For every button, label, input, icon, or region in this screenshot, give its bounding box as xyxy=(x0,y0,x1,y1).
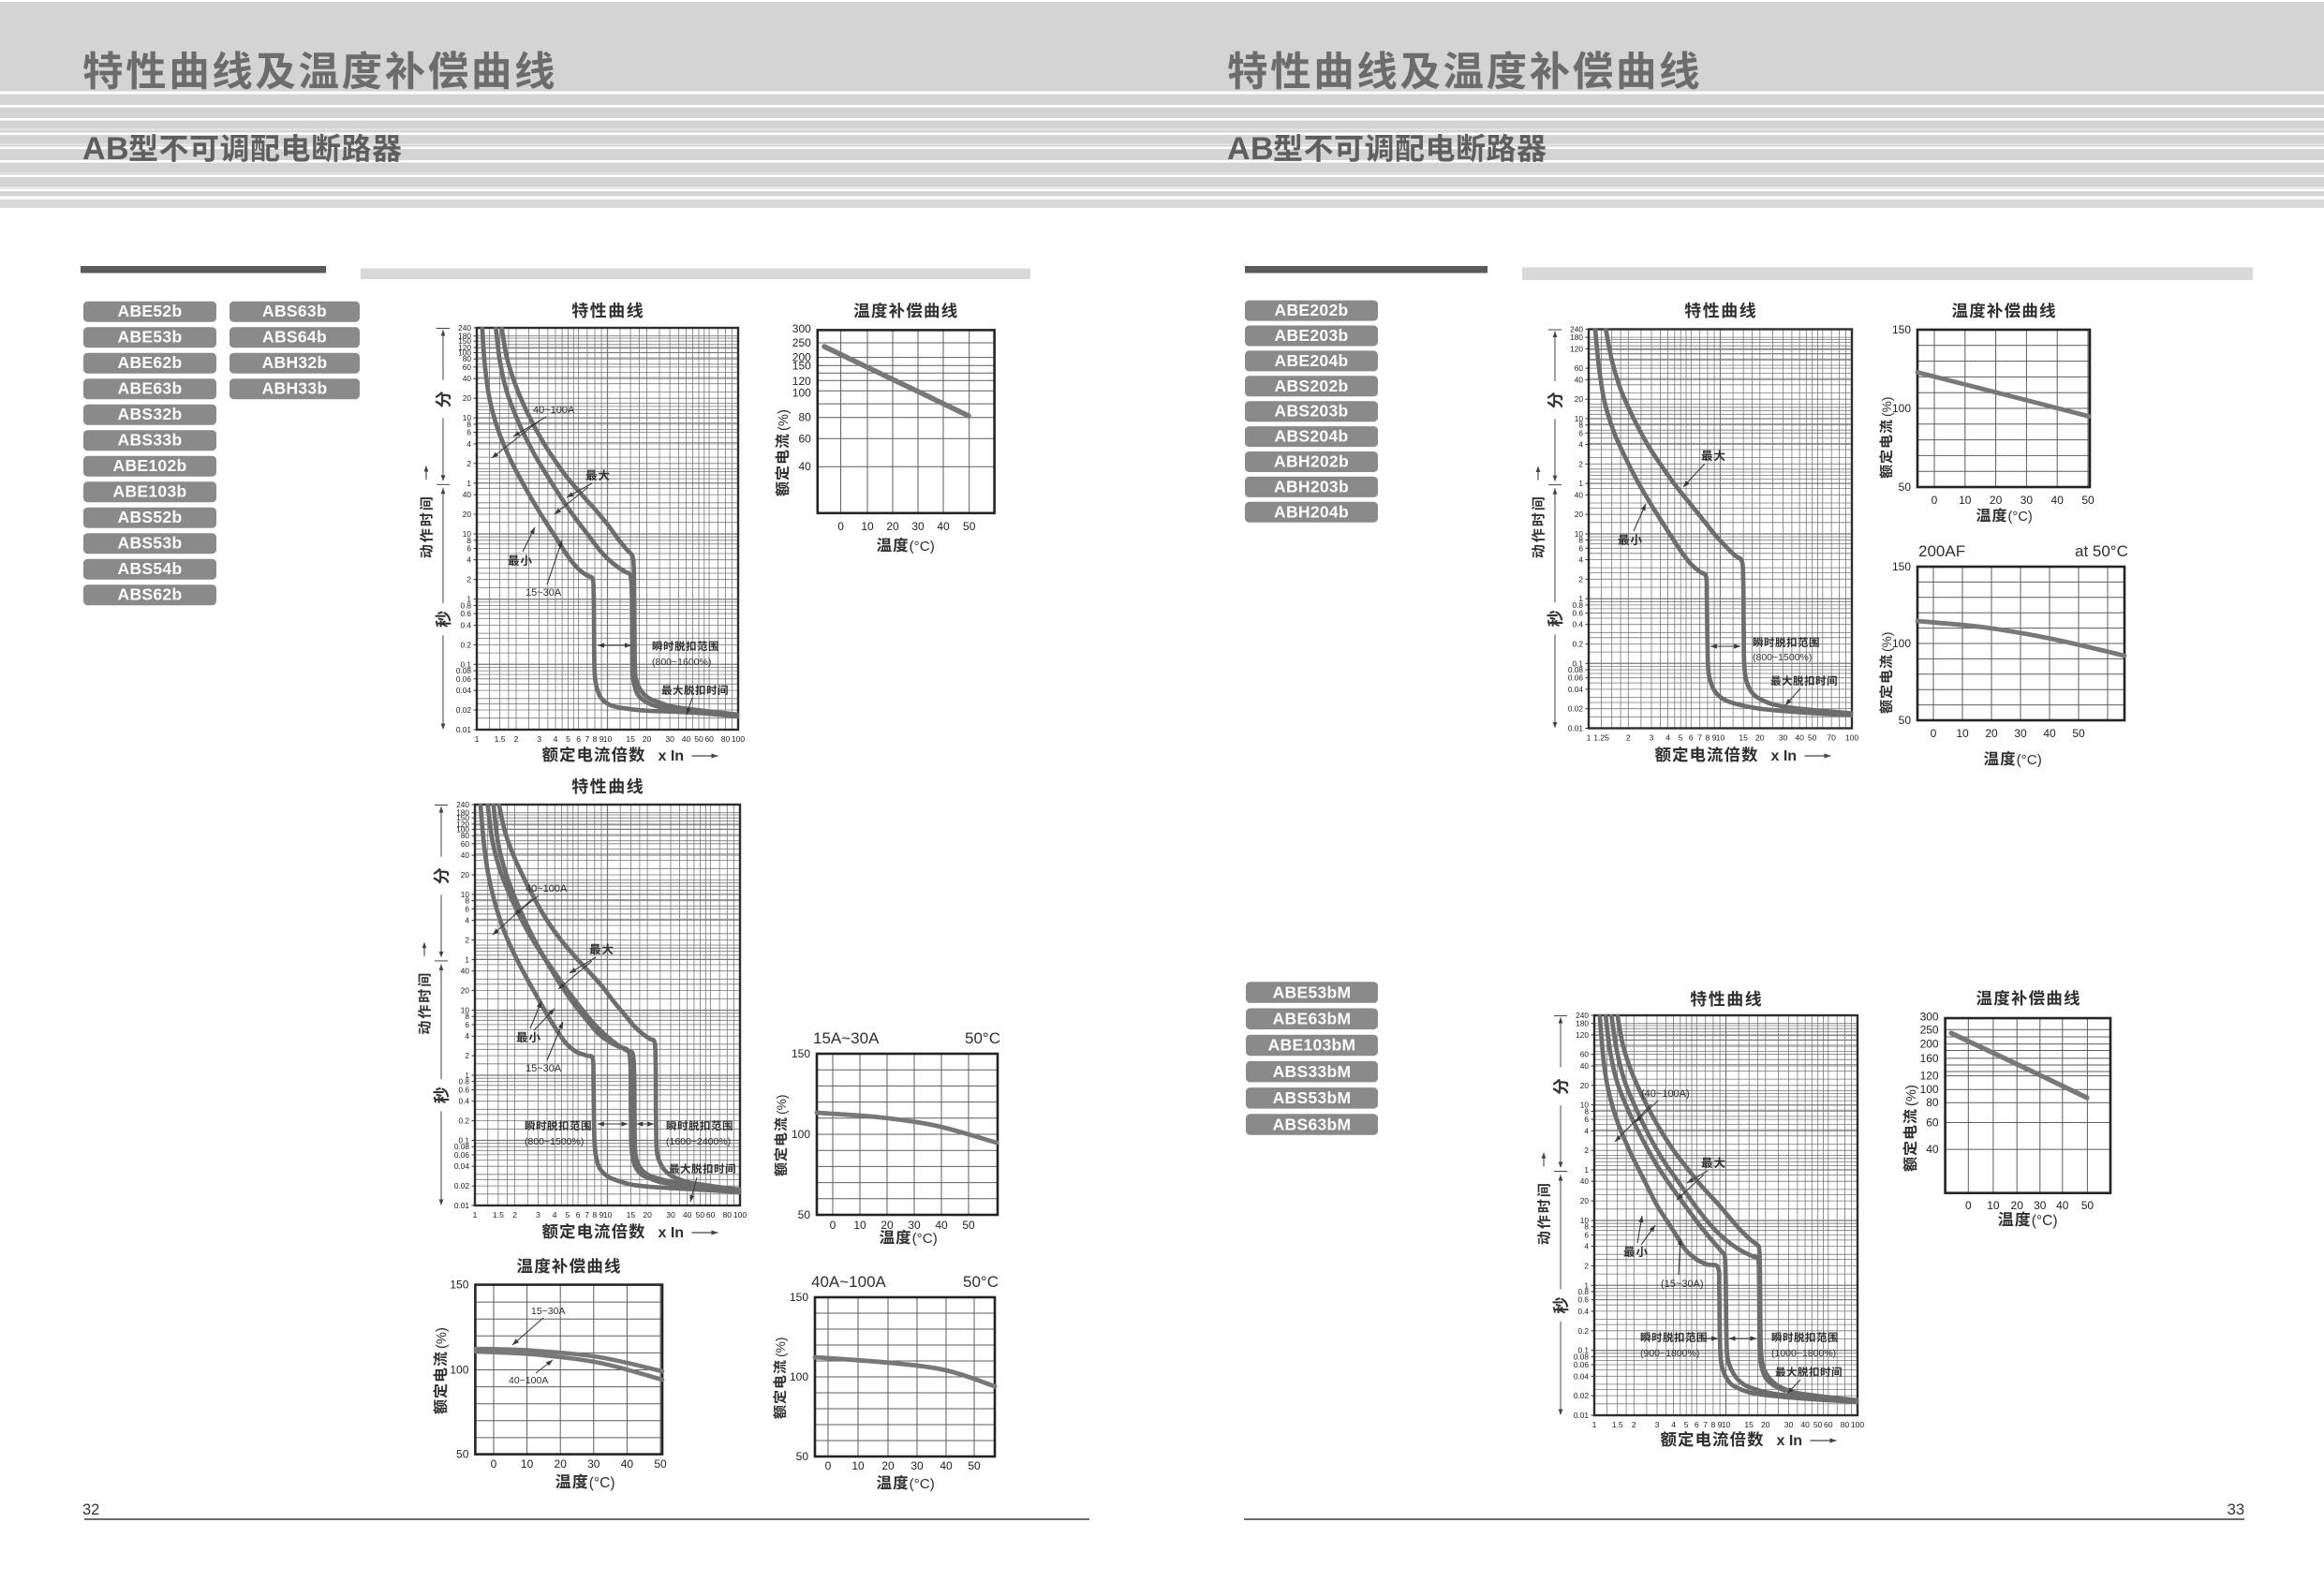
svg-text:50°C: 50°C xyxy=(963,1273,999,1291)
svg-text:6: 6 xyxy=(1695,1420,1699,1429)
svg-text:40: 40 xyxy=(2051,494,2065,507)
svg-text:1: 1 xyxy=(1584,1165,1589,1175)
svg-text:0.4: 0.4 xyxy=(460,620,471,629)
svg-text:40: 40 xyxy=(1575,490,1584,499)
svg-text:100: 100 xyxy=(1892,402,1911,415)
svg-text:50: 50 xyxy=(2081,494,2095,507)
svg-text:0.01: 0.01 xyxy=(454,1201,470,1210)
svg-text:40: 40 xyxy=(683,1210,692,1220)
svg-text:ABH33b: ABH33b xyxy=(262,379,328,398)
svg-text:15: 15 xyxy=(626,734,635,744)
svg-text:50: 50 xyxy=(968,1459,981,1472)
svg-text:300: 300 xyxy=(1920,1011,1939,1024)
svg-text:15: 15 xyxy=(1744,1420,1754,1429)
svg-text:0: 0 xyxy=(837,520,844,533)
svg-text:0.4: 0.4 xyxy=(458,1097,469,1106)
svg-text:150: 150 xyxy=(792,359,811,372)
svg-text:ABH32b: ABH32b xyxy=(262,353,328,372)
svg-text:ABS53bM: ABS53bM xyxy=(1273,1088,1352,1107)
svg-text:(%): (%) xyxy=(1880,397,1894,417)
svg-text:1: 1 xyxy=(1587,733,1591,743)
svg-text:4: 4 xyxy=(1665,733,1670,743)
svg-text:ABE62b: ABE62b xyxy=(118,353,183,372)
svg-text:10: 10 xyxy=(1959,494,1972,507)
svg-text:5: 5 xyxy=(1684,1420,1689,1429)
svg-text:10: 10 xyxy=(1956,727,1969,740)
svg-text:3: 3 xyxy=(537,734,541,744)
svg-text:(1600~2400%): (1600~2400%) xyxy=(666,1136,731,1147)
svg-text:ABS53b: ABS53b xyxy=(118,534,183,553)
svg-text:0: 0 xyxy=(830,1219,836,1232)
svg-text:0.04: 0.04 xyxy=(454,1161,470,1171)
svg-text:ABE63bM: ABE63bM xyxy=(1273,1010,1352,1028)
svg-text:1: 1 xyxy=(475,734,480,744)
svg-text:0: 0 xyxy=(1931,727,1937,740)
svg-text:20: 20 xyxy=(643,1210,652,1220)
svg-text:8: 8 xyxy=(1711,1420,1716,1429)
svg-text:80: 80 xyxy=(721,734,731,744)
svg-text:60: 60 xyxy=(704,734,714,744)
svg-text:20: 20 xyxy=(1985,727,1998,740)
svg-text:40: 40 xyxy=(1580,1176,1590,1186)
svg-text:(800~1500%): (800~1500%) xyxy=(525,1136,584,1147)
svg-text:70: 70 xyxy=(1827,733,1836,743)
svg-text:ABE203b: ABE203b xyxy=(1275,326,1349,345)
svg-text:40: 40 xyxy=(1800,1420,1810,1429)
svg-text:(%): (%) xyxy=(774,1338,788,1357)
svg-text:100: 100 xyxy=(450,1364,468,1377)
svg-text:60: 60 xyxy=(463,362,472,372)
svg-text:40: 40 xyxy=(463,374,472,383)
svg-text:20: 20 xyxy=(1575,394,1584,404)
svg-text:ABE53bM: ABE53bM xyxy=(1273,983,1352,1001)
svg-text:60: 60 xyxy=(1575,363,1584,373)
svg-text:15~30A: 15~30A xyxy=(525,1063,562,1074)
svg-text:100: 100 xyxy=(733,1210,748,1220)
svg-text:3: 3 xyxy=(536,1210,540,1220)
svg-text:50: 50 xyxy=(798,1208,811,1221)
svg-text:1: 1 xyxy=(465,954,469,964)
svg-text:50: 50 xyxy=(1808,733,1817,743)
svg-text:6: 6 xyxy=(1689,733,1694,743)
svg-text:0.02: 0.02 xyxy=(454,1181,470,1190)
svg-text:0.6: 0.6 xyxy=(1577,1295,1589,1305)
svg-text:15: 15 xyxy=(1739,733,1748,743)
svg-text:0.06: 0.06 xyxy=(1574,1360,1590,1369)
svg-text:40: 40 xyxy=(621,1457,634,1471)
svg-text:(°C): (°C) xyxy=(589,1475,615,1491)
svg-text:AB: AB xyxy=(82,131,129,167)
svg-text:2: 2 xyxy=(1584,1146,1589,1155)
svg-text:ABS63bM: ABS63bM xyxy=(1273,1115,1352,1133)
svg-text:10: 10 xyxy=(521,1457,534,1471)
svg-text:50: 50 xyxy=(963,520,976,533)
svg-text:0.6: 0.6 xyxy=(458,1085,469,1094)
svg-text:60: 60 xyxy=(706,1210,716,1220)
svg-text:6: 6 xyxy=(466,428,471,437)
svg-text:3: 3 xyxy=(1655,1420,1660,1429)
svg-text:ABS54b: ABS54b xyxy=(118,559,183,578)
svg-text:7: 7 xyxy=(1703,1420,1708,1429)
svg-text:0: 0 xyxy=(491,1457,497,1471)
svg-text:30: 30 xyxy=(910,1459,924,1472)
svg-text:ABS203b: ABS203b xyxy=(1275,402,1349,421)
svg-text:100: 100 xyxy=(1845,733,1859,743)
svg-text:100: 100 xyxy=(1851,1420,1865,1429)
svg-text:180: 180 xyxy=(1576,1019,1589,1028)
svg-text:10: 10 xyxy=(851,1459,865,1472)
svg-text:30: 30 xyxy=(2014,727,2027,740)
svg-text:ABS33bM: ABS33bM xyxy=(1273,1062,1352,1081)
svg-text:0.01: 0.01 xyxy=(1568,724,1584,733)
svg-text:0.04: 0.04 xyxy=(456,686,472,695)
svg-text:40: 40 xyxy=(461,967,470,976)
svg-text:100: 100 xyxy=(1892,637,1911,650)
svg-text:50: 50 xyxy=(962,1219,975,1232)
svg-text:20: 20 xyxy=(1580,1081,1590,1090)
svg-text:(40~100A): (40~100A) xyxy=(1641,1088,1690,1100)
svg-text:2: 2 xyxy=(466,575,471,584)
svg-text:40: 40 xyxy=(1926,1143,1939,1156)
svg-text:60: 60 xyxy=(1824,1420,1833,1429)
svg-text:50: 50 xyxy=(1899,481,1912,494)
svg-text:20: 20 xyxy=(1755,733,1765,743)
svg-text:0: 0 xyxy=(1932,494,1938,507)
svg-text:4: 4 xyxy=(1578,555,1583,565)
svg-text:250: 250 xyxy=(1920,1023,1939,1036)
svg-text:6: 6 xyxy=(1578,543,1583,553)
svg-text:(900~1800%): (900~1800%) xyxy=(1640,1348,1699,1359)
svg-text:20: 20 xyxy=(1580,1196,1590,1205)
svg-text:20: 20 xyxy=(881,1219,894,1232)
svg-text:50: 50 xyxy=(1899,714,1912,727)
svg-text:50: 50 xyxy=(2072,727,2085,740)
svg-text:0.01: 0.01 xyxy=(1574,1411,1590,1420)
svg-text:0.04: 0.04 xyxy=(1568,685,1584,694)
svg-text:80: 80 xyxy=(1841,1420,1850,1429)
svg-text:50: 50 xyxy=(796,1450,809,1463)
svg-text:40: 40 xyxy=(2056,1199,2069,1212)
svg-text:2: 2 xyxy=(512,1210,517,1220)
svg-text:6: 6 xyxy=(1584,1230,1589,1239)
svg-text:ABS63b: ABS63b xyxy=(262,302,327,320)
svg-text:40: 40 xyxy=(1795,733,1804,743)
svg-text:x In: x In xyxy=(659,1225,685,1241)
svg-text:20: 20 xyxy=(881,1459,895,1472)
svg-text:6: 6 xyxy=(576,1210,581,1220)
svg-text:50: 50 xyxy=(1813,1420,1823,1429)
svg-text:x In: x In xyxy=(1777,1433,1803,1449)
svg-text:x In: x In xyxy=(1771,748,1798,764)
svg-text:180: 180 xyxy=(1570,333,1583,342)
svg-text:4: 4 xyxy=(553,1210,557,1220)
svg-text:(°C): (°C) xyxy=(912,1231,938,1247)
svg-text:150: 150 xyxy=(790,1291,808,1304)
svg-text:20: 20 xyxy=(555,1457,568,1471)
svg-text:6: 6 xyxy=(1584,1115,1589,1124)
svg-text:60: 60 xyxy=(1580,1050,1590,1059)
svg-text:ABE52b: ABE52b xyxy=(118,302,183,320)
svg-text:10: 10 xyxy=(1987,1199,2000,1212)
svg-text:100: 100 xyxy=(792,387,811,400)
svg-text:AB: AB xyxy=(1227,131,1274,167)
svg-text:(°C): (°C) xyxy=(2008,510,2033,525)
svg-text:10: 10 xyxy=(1722,1420,1731,1429)
svg-text:40~100A: 40~100A xyxy=(533,405,575,416)
svg-text:0.04: 0.04 xyxy=(1574,1371,1590,1381)
svg-text:50: 50 xyxy=(694,734,703,744)
svg-text:0.02: 0.02 xyxy=(456,705,472,715)
svg-text:20: 20 xyxy=(886,520,899,533)
svg-text:8: 8 xyxy=(1706,733,1710,743)
svg-text:80: 80 xyxy=(1926,1096,1939,1109)
svg-text:at 50°C: at 50°C xyxy=(2075,542,2128,560)
svg-text:30: 30 xyxy=(2021,494,2034,507)
svg-text:30: 30 xyxy=(587,1457,600,1471)
svg-text:200: 200 xyxy=(1920,1038,1939,1051)
svg-text:160: 160 xyxy=(1920,1052,1939,1065)
svg-text:20: 20 xyxy=(1761,1420,1770,1429)
svg-text:3: 3 xyxy=(1650,733,1654,743)
svg-text:4: 4 xyxy=(466,555,471,565)
svg-text:0.4: 0.4 xyxy=(1577,1307,1589,1316)
svg-text:20: 20 xyxy=(463,393,472,403)
svg-text:ABS64b: ABS64b xyxy=(262,328,327,347)
svg-text:ABH203b: ABH203b xyxy=(1274,477,1349,495)
svg-text:(%): (%) xyxy=(1880,632,1894,652)
svg-text:4: 4 xyxy=(1671,1420,1676,1429)
svg-text:5: 5 xyxy=(566,1210,570,1220)
svg-text:30: 30 xyxy=(2034,1199,2047,1212)
svg-text:(800~1500%): (800~1500%) xyxy=(1753,652,1812,663)
svg-text:30: 30 xyxy=(1784,1420,1794,1429)
svg-text:15A~30A: 15A~30A xyxy=(813,1029,880,1047)
svg-text:30: 30 xyxy=(666,1210,675,1220)
svg-text:ABS204b: ABS204b xyxy=(1275,427,1349,446)
svg-text:40: 40 xyxy=(940,1459,953,1472)
svg-text:10: 10 xyxy=(603,1210,613,1220)
svg-text:x In: x In xyxy=(659,748,685,764)
svg-text:80: 80 xyxy=(798,411,811,424)
svg-text:2: 2 xyxy=(1584,1262,1589,1271)
svg-text:50: 50 xyxy=(456,1448,469,1461)
svg-text:0.2: 0.2 xyxy=(460,640,471,649)
svg-text:150: 150 xyxy=(450,1279,468,1292)
svg-text:2: 2 xyxy=(514,734,519,744)
svg-text:0: 0 xyxy=(1965,1199,1972,1212)
svg-text:250: 250 xyxy=(792,336,811,349)
svg-text:100: 100 xyxy=(792,1128,810,1141)
svg-text:4: 4 xyxy=(1584,1242,1589,1251)
svg-text:(°C): (°C) xyxy=(2017,752,2042,768)
svg-text:60: 60 xyxy=(461,839,470,849)
svg-text:ABS52b: ABS52b xyxy=(118,508,183,526)
svg-text:2: 2 xyxy=(466,459,471,468)
svg-text:1: 1 xyxy=(1592,1420,1597,1429)
svg-text:1: 1 xyxy=(1578,479,1583,488)
svg-text:40: 40 xyxy=(798,460,811,473)
svg-text:30: 30 xyxy=(911,520,925,533)
svg-text:40: 40 xyxy=(461,850,470,860)
svg-text:5: 5 xyxy=(566,734,570,744)
svg-text:2: 2 xyxy=(1626,733,1631,743)
svg-text:(1000~1800%): (1000~1800%) xyxy=(1771,1348,1836,1359)
svg-text:40~100A: 40~100A xyxy=(525,883,568,894)
svg-text:1.5: 1.5 xyxy=(493,1210,504,1220)
svg-text:120: 120 xyxy=(1576,1030,1589,1040)
svg-text:20: 20 xyxy=(1575,510,1584,519)
svg-text:5: 5 xyxy=(1679,733,1683,743)
svg-text:0.02: 0.02 xyxy=(1568,704,1584,714)
svg-text:1.25: 1.25 xyxy=(1593,733,1609,743)
svg-text:10: 10 xyxy=(861,520,874,533)
svg-text:0.2: 0.2 xyxy=(1577,1326,1589,1336)
svg-text:0.2: 0.2 xyxy=(1572,640,1583,649)
svg-text:8: 8 xyxy=(592,1210,597,1220)
svg-text:(%): (%) xyxy=(435,1327,450,1349)
svg-text:2: 2 xyxy=(1632,1420,1636,1429)
svg-text:300: 300 xyxy=(792,322,811,335)
svg-text:0: 0 xyxy=(825,1459,832,1472)
svg-text:120: 120 xyxy=(1920,1070,1939,1083)
svg-text:ABE103bM: ABE103bM xyxy=(1268,1036,1356,1055)
svg-text:2: 2 xyxy=(465,936,469,945)
svg-text:(°C): (°C) xyxy=(2032,1213,2058,1229)
svg-text:10: 10 xyxy=(1716,733,1725,743)
svg-text:0.6: 0.6 xyxy=(460,609,471,618)
svg-text:ABH202b: ABH202b xyxy=(1274,452,1349,471)
svg-text:ABE204b: ABE204b xyxy=(1275,351,1349,370)
svg-text:7: 7 xyxy=(585,1210,589,1220)
svg-text:ABS62b: ABS62b xyxy=(118,585,183,604)
svg-text:(°C): (°C) xyxy=(910,539,935,554)
svg-text:(%): (%) xyxy=(775,1095,789,1115)
svg-text:120: 120 xyxy=(1570,344,1583,353)
svg-text:10: 10 xyxy=(603,734,613,744)
svg-text:15~30A: 15~30A xyxy=(525,587,562,599)
svg-text:15: 15 xyxy=(627,1210,636,1220)
svg-text:50°C: 50°C xyxy=(965,1029,1000,1047)
svg-text:ABS32b: ABS32b xyxy=(118,405,183,423)
svg-text:60: 60 xyxy=(798,432,811,445)
svg-text:40: 40 xyxy=(1580,1061,1590,1071)
svg-text:6: 6 xyxy=(465,904,469,913)
svg-text:20: 20 xyxy=(463,510,472,519)
svg-text:30: 30 xyxy=(908,1219,921,1232)
svg-text:32: 32 xyxy=(82,1501,99,1518)
svg-text:100: 100 xyxy=(790,1370,808,1383)
svg-text:1: 1 xyxy=(473,1210,478,1220)
svg-text:ABS33b: ABS33b xyxy=(118,431,183,450)
svg-text:40: 40 xyxy=(682,734,691,744)
svg-text:2: 2 xyxy=(1578,459,1583,468)
svg-text:6: 6 xyxy=(1578,428,1583,437)
svg-text:ABE63b: ABE63b xyxy=(118,379,183,398)
svg-text:1: 1 xyxy=(466,479,471,488)
svg-text:0.01: 0.01 xyxy=(456,725,472,734)
svg-text:150: 150 xyxy=(1892,323,1911,336)
svg-text:0.6: 0.6 xyxy=(1572,609,1583,618)
svg-text:ABS202b: ABS202b xyxy=(1275,377,1349,395)
svg-text:20: 20 xyxy=(1990,494,2003,507)
svg-text:60: 60 xyxy=(1926,1116,1939,1130)
svg-text:150: 150 xyxy=(792,1047,810,1060)
svg-text:0.06: 0.06 xyxy=(454,1150,470,1160)
svg-text:80: 80 xyxy=(723,1210,733,1220)
svg-text:6: 6 xyxy=(465,1020,469,1029)
svg-text:6: 6 xyxy=(576,734,581,744)
svg-text:(°C): (°C) xyxy=(910,1476,935,1492)
svg-text:7: 7 xyxy=(585,734,590,744)
svg-text:40: 40 xyxy=(2043,727,2056,740)
svg-text:2: 2 xyxy=(1578,574,1583,584)
svg-text:200AF: 200AF xyxy=(1918,542,1965,560)
svg-text:0.06: 0.06 xyxy=(456,674,472,684)
svg-text:50: 50 xyxy=(2081,1199,2095,1212)
svg-text:33: 33 xyxy=(2228,1501,2244,1518)
svg-text:4: 4 xyxy=(465,1031,469,1041)
svg-text:(%): (%) xyxy=(1904,1085,1919,1106)
svg-text:6: 6 xyxy=(466,544,471,554)
svg-text:40: 40 xyxy=(463,490,472,499)
svg-text:50: 50 xyxy=(654,1457,667,1471)
svg-text:20: 20 xyxy=(461,986,470,996)
svg-text:40~100A: 40~100A xyxy=(509,1375,548,1386)
svg-text:40: 40 xyxy=(935,1219,948,1232)
svg-text:4: 4 xyxy=(554,734,558,744)
svg-text:30: 30 xyxy=(1779,733,1788,743)
svg-text:4: 4 xyxy=(466,439,471,449)
svg-text:30: 30 xyxy=(665,734,674,744)
svg-text:ABE202b: ABE202b xyxy=(1275,301,1349,319)
svg-text:40: 40 xyxy=(1575,375,1584,384)
svg-text:20: 20 xyxy=(2011,1199,2024,1212)
svg-text:ABH204b: ABH204b xyxy=(1274,502,1349,521)
svg-text:100: 100 xyxy=(732,734,746,744)
svg-text:0.02: 0.02 xyxy=(1574,1391,1590,1400)
svg-text:40A~100A: 40A~100A xyxy=(811,1273,887,1291)
svg-text:40: 40 xyxy=(937,520,950,533)
svg-text:15~30A: 15~30A xyxy=(531,1306,566,1317)
svg-text:4: 4 xyxy=(1578,440,1583,450)
svg-text:2: 2 xyxy=(465,1051,469,1060)
svg-text:100: 100 xyxy=(1920,1083,1939,1096)
svg-text:4: 4 xyxy=(1584,1126,1589,1135)
svg-text:(15~30A): (15~30A) xyxy=(1661,1279,1704,1290)
svg-text:(800~1600%): (800~1600%) xyxy=(652,657,711,668)
svg-text:ABE103b: ABE103b xyxy=(113,482,187,501)
svg-text:10: 10 xyxy=(853,1219,866,1232)
svg-text:ABE53b: ABE53b xyxy=(118,328,183,347)
svg-text:ABE102b: ABE102b xyxy=(113,456,187,475)
svg-text:(%): (%) xyxy=(777,409,792,431)
svg-text:0.06: 0.06 xyxy=(1568,673,1584,683)
svg-text:8: 8 xyxy=(593,734,598,744)
svg-text:50: 50 xyxy=(696,1210,705,1220)
svg-text:20: 20 xyxy=(461,870,470,880)
svg-text:20: 20 xyxy=(643,734,652,744)
svg-text:1.5: 1.5 xyxy=(495,734,506,744)
svg-text:0.2: 0.2 xyxy=(458,1116,469,1126)
svg-text:150: 150 xyxy=(1892,560,1911,573)
svg-text:4: 4 xyxy=(465,916,469,925)
svg-text:1.5: 1.5 xyxy=(1612,1420,1623,1429)
svg-text:7: 7 xyxy=(1697,733,1702,743)
svg-text:0.4: 0.4 xyxy=(1572,620,1583,629)
